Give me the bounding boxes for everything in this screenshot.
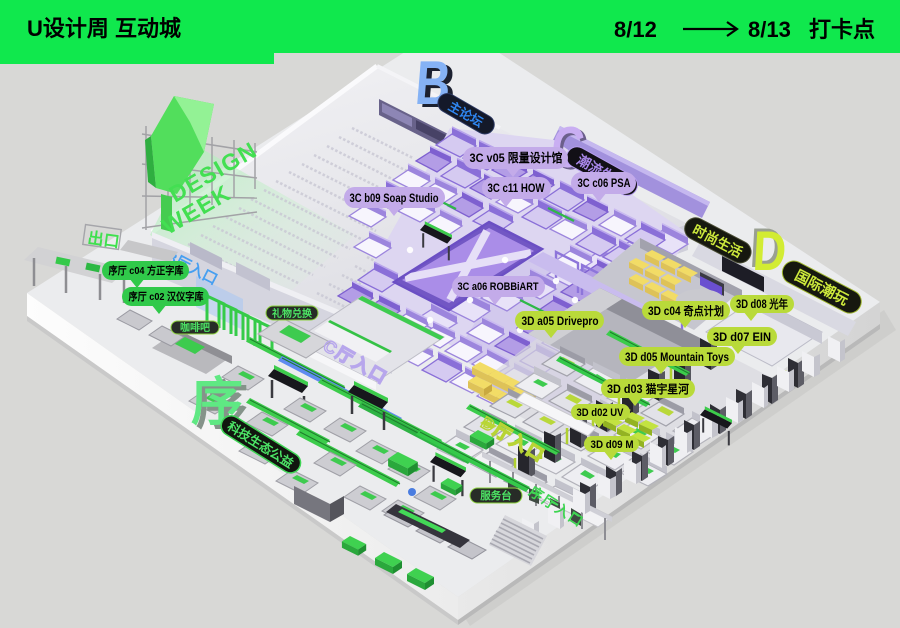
svg-text:3C b09 Soap Studio: 3C b09 Soap Studio	[350, 193, 439, 205]
svg-text:3C c11 HOW: 3C c11 HOW	[488, 181, 546, 195]
svg-text:咖啡吧: 咖啡吧	[180, 321, 210, 334]
svg-text:3D c04 奇点计划: 3D c04 奇点计划	[648, 304, 724, 318]
svg-text:服务台: 服务台	[480, 489, 512, 502]
svg-text:3D d07 EIN: 3D d07 EIN	[713, 330, 771, 344]
svg-text:3D d05 Mountain Toys: 3D d05 Mountain Toys	[625, 352, 729, 364]
svg-text:3D d09 M: 3D d09 M	[591, 439, 634, 451]
svg-text:8/12: 8/12	[614, 17, 657, 42]
svg-text:序厅 c02 汉仪字库: 序厅 c02 汉仪字库	[129, 290, 204, 303]
svg-text:3C v05 限量设计馆: 3C v05 限量设计馆	[470, 150, 563, 165]
svg-text:3D d02 UV: 3D d02 UV	[577, 407, 625, 419]
svg-text:礼物兑换: 礼物兑换	[272, 307, 313, 320]
svg-text:3C c06 PSA: 3C c06 PSA	[578, 176, 631, 190]
svg-text:U设计周 互动城: U设计周 互动城	[27, 16, 181, 41]
svg-text:3D a05 Drivepro: 3D a05 Drivepro	[522, 316, 599, 328]
svg-text:3D d08 光年: 3D d08 光年	[736, 297, 788, 311]
svg-text:8/13: 8/13	[748, 17, 791, 42]
svg-text:打卡点: 打卡点	[809, 17, 875, 42]
svg-text:3D d03 猫宇星河: 3D d03 猫宇星河	[607, 382, 689, 396]
svg-text:序厅 c04 方正字库: 序厅 c04 方正字库	[109, 264, 184, 277]
svg-text:3C a06 ROBBiART: 3C a06 ROBBiART	[458, 281, 539, 293]
